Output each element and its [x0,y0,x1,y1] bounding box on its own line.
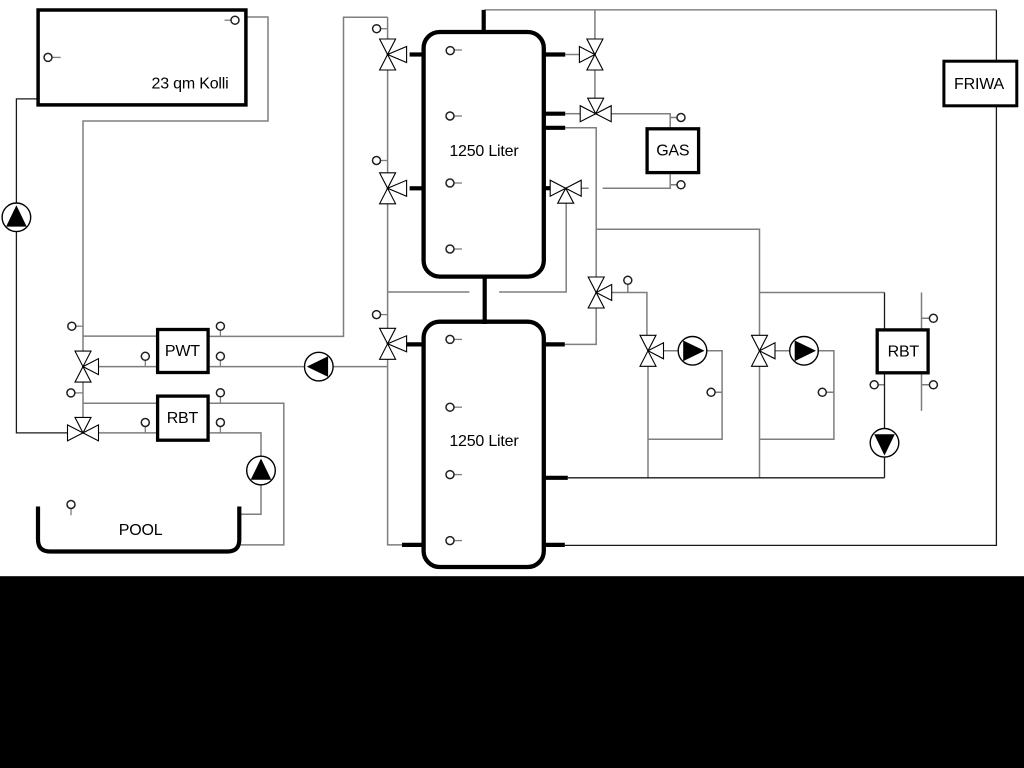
svg-text:1250 Liter: 1250 Liter [449,433,519,450]
svg-text:1250 Liter: 1250 Liter [449,143,519,160]
svg-text:RBT: RBT [888,343,920,360]
svg-text:FRIWA: FRIWA [954,76,1004,93]
svg-text:GAS: GAS [656,143,689,160]
svg-text:PWT: PWT [165,343,200,360]
svg-text:23 qm Kolli: 23 qm Kolli [152,76,229,93]
svg-text:POOL: POOL [119,522,163,539]
svg-text:RBT: RBT [167,410,199,427]
